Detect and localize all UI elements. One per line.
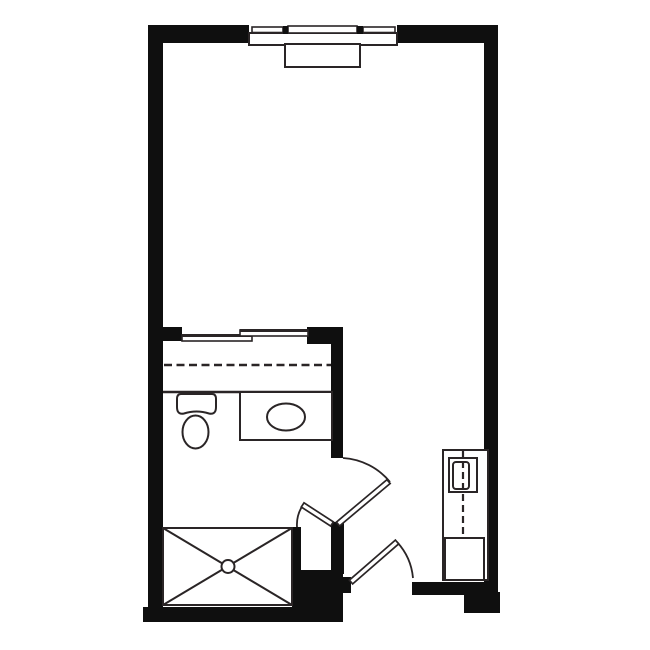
vanity-sink-basin [267,404,305,431]
window-assembly [249,25,397,67]
bathroom [163,392,390,605]
vanity-icon [240,392,332,440]
left-exterior-wall [148,25,163,622]
closet-bypass [163,330,331,392]
toilet-bowl [183,416,209,449]
floor-plan-page [0,0,650,650]
shower-icon [163,528,292,605]
bathroom-door [336,458,390,526]
bathroom-door-swing-arc [343,458,390,482]
wardrobe-appliance-inner [453,462,469,489]
entry [349,540,413,584]
closet-wall-left-stub [163,327,182,341]
top-wall-left-segment [148,25,251,43]
bottom-right-corner-block [464,592,500,613]
window-pane-center [288,26,357,33]
top-wall-right-segment [396,25,498,43]
toilet-tank [177,394,216,414]
niche-right-wall-stub [331,522,344,574]
window-pane-left [252,27,283,33]
floor-plan-drawing [0,0,650,650]
entry-door-swing-arc [397,542,413,578]
niche-door [297,503,333,527]
window-pane-right [363,27,395,33]
entry-door-leaf [349,540,398,584]
niche-door-leaf [301,503,333,526]
shower-drain [222,560,235,573]
toilet-icon [177,394,216,449]
wardrobe-shelf-box [445,538,484,580]
niche-left-wall-stub [292,527,301,573]
bathroom-door-leaf [336,480,390,526]
window-mullion-right [357,26,363,34]
window-mullion-left [283,26,288,34]
bathroom-se-corner-block [292,570,343,613]
hvac-unit-box [285,44,360,67]
wardrobe-closet [443,450,488,580]
